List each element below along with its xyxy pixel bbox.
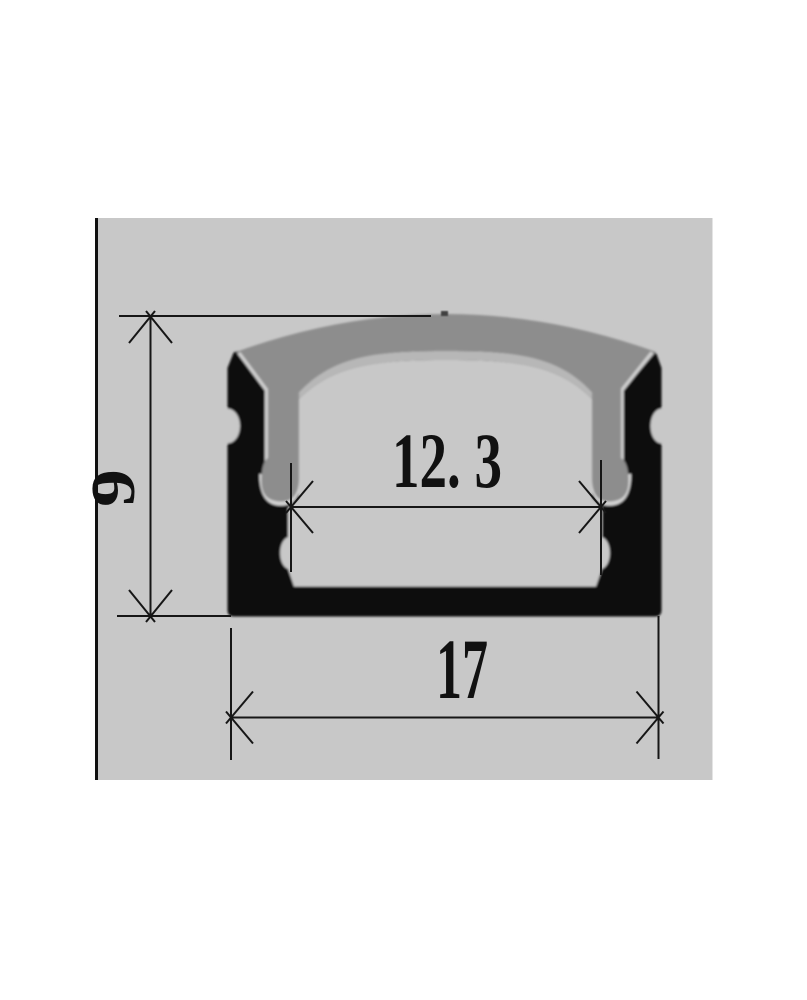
- svg-text:12. 3: 12. 3: [392, 417, 502, 504]
- svg-text:17: 17: [436, 621, 488, 717]
- svg-text:9: 9: [79, 469, 149, 507]
